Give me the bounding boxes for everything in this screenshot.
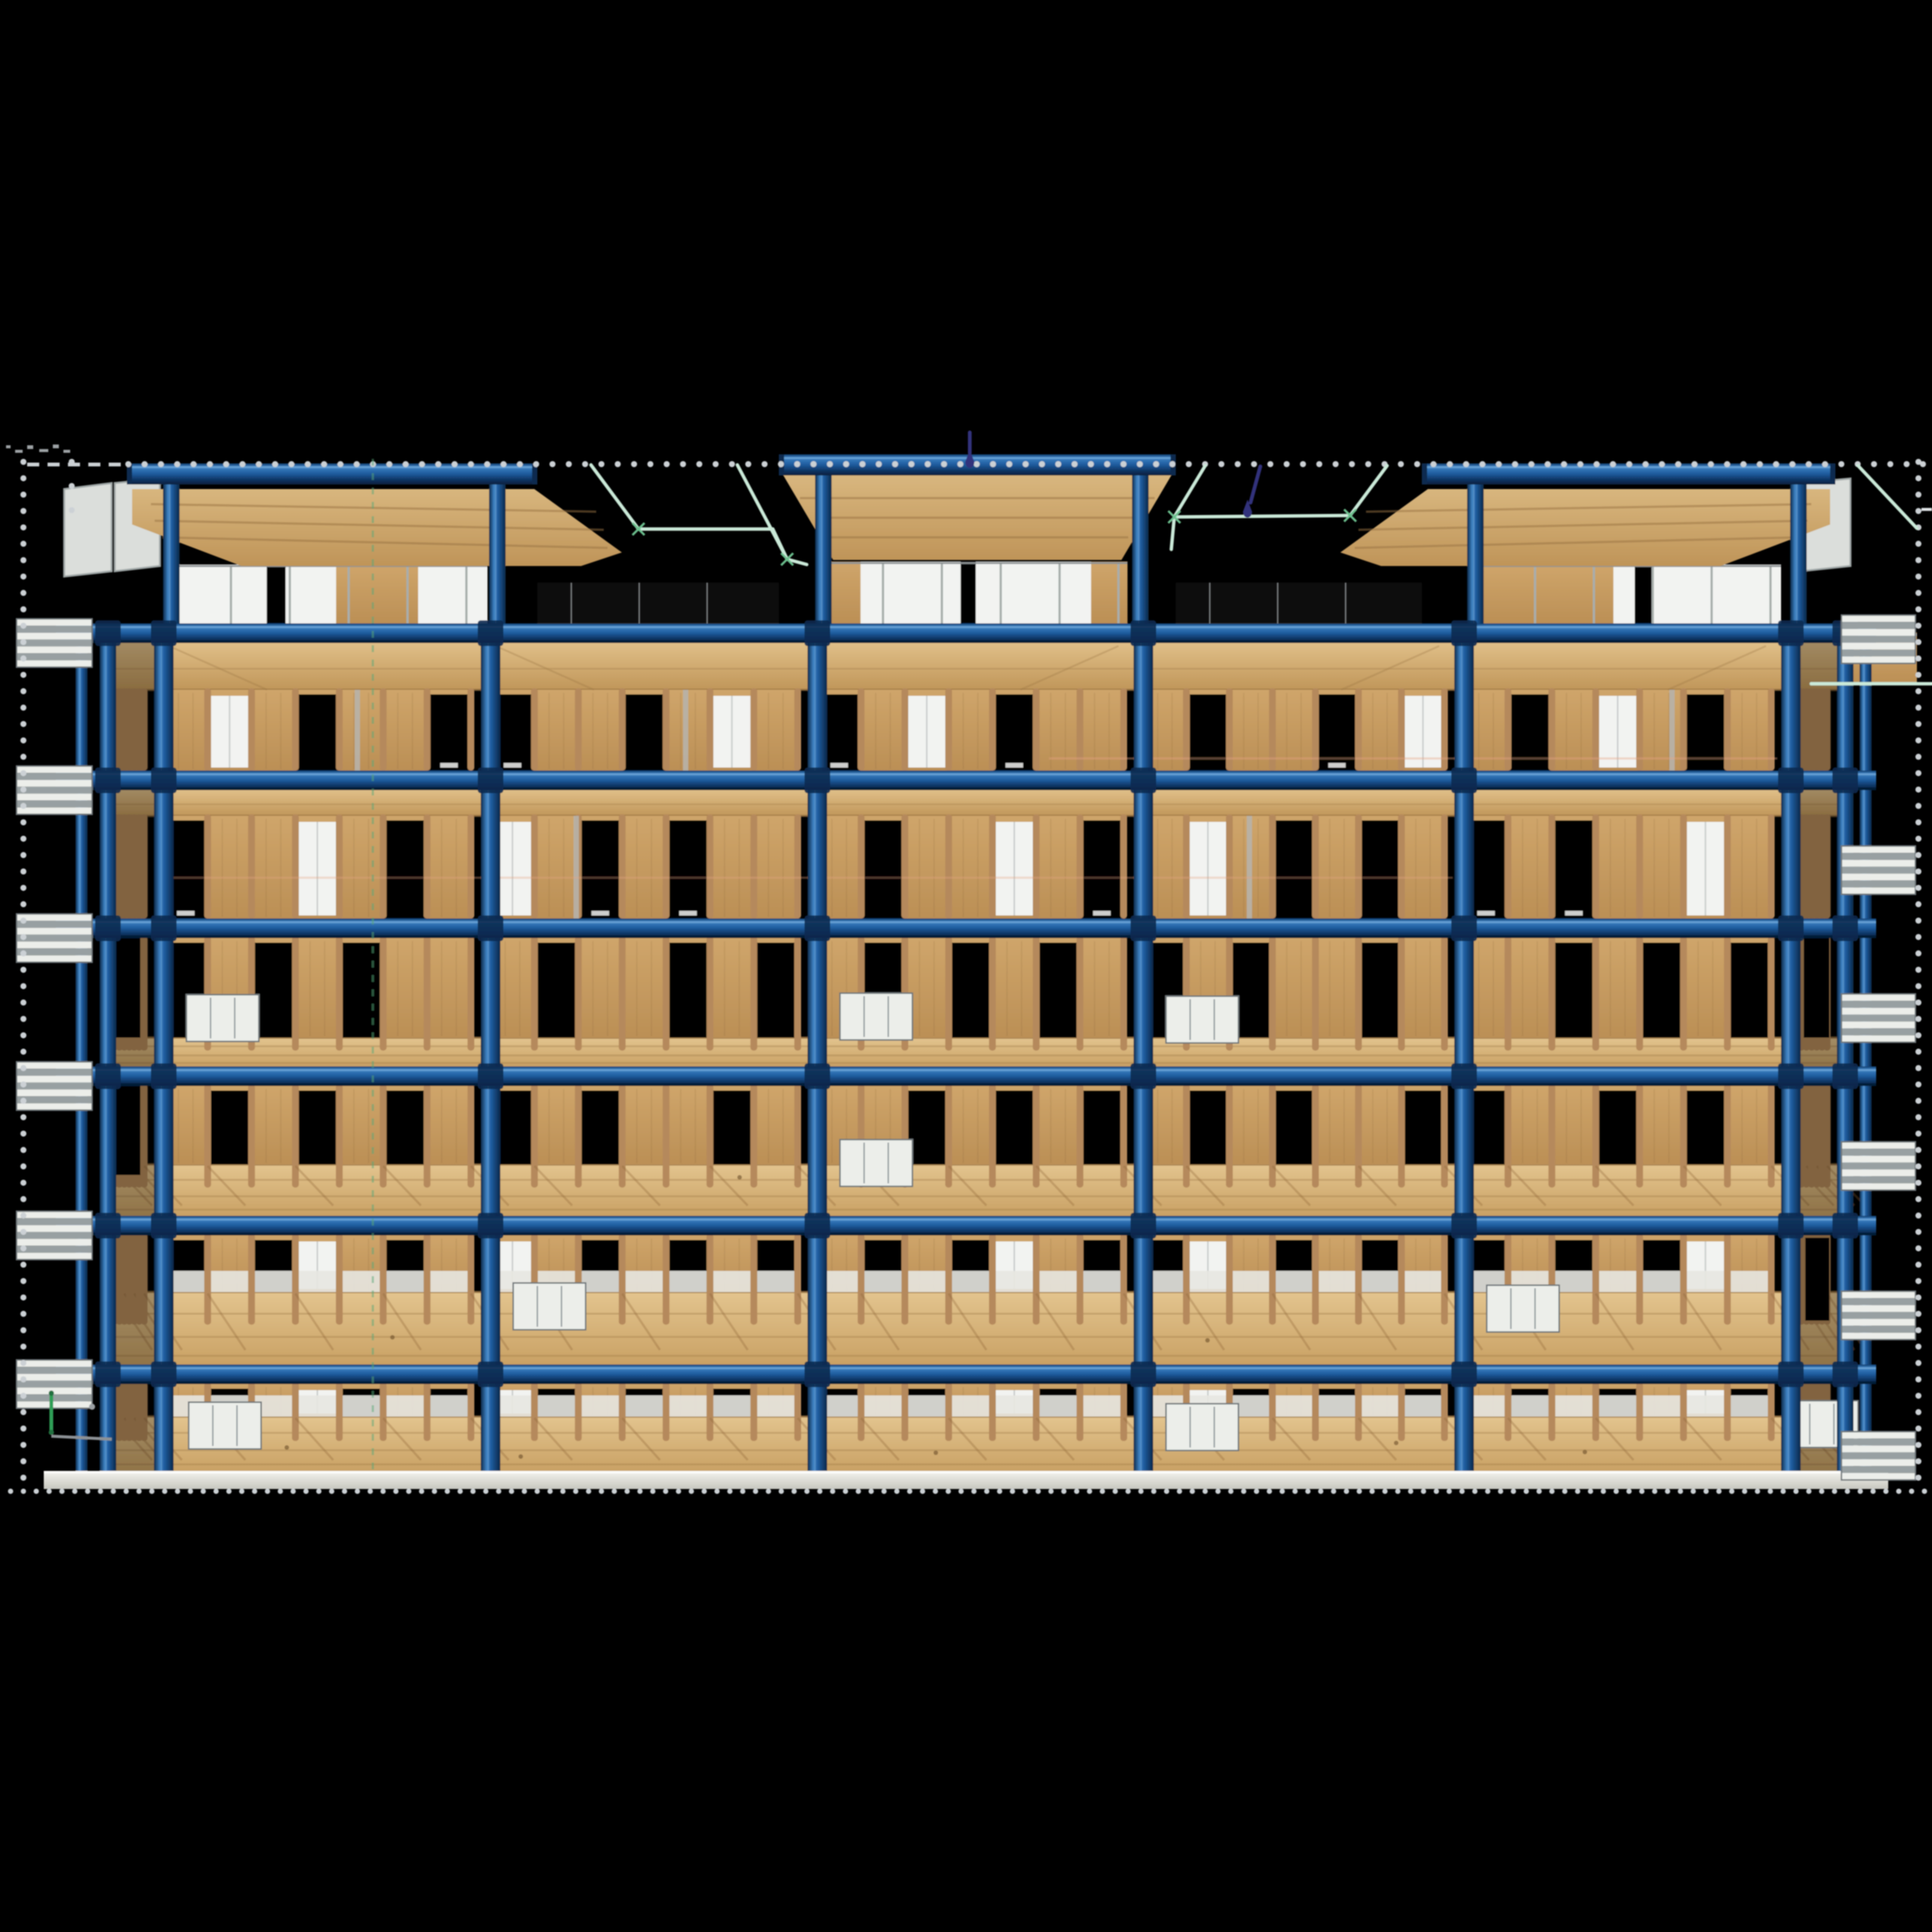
timber-facade[interactable] bbox=[100, 583, 1865, 1471]
model-3d-view[interactable] bbox=[0, 0, 1932, 1932]
scene-root bbox=[6, 432, 1932, 1494]
penthouse-center[interactable] bbox=[779, 454, 1176, 626]
cad-viewport[interactable] bbox=[0, 0, 1932, 1932]
building-model[interactable] bbox=[17, 454, 1917, 1489]
ground-slab bbox=[44, 1471, 1888, 1489]
